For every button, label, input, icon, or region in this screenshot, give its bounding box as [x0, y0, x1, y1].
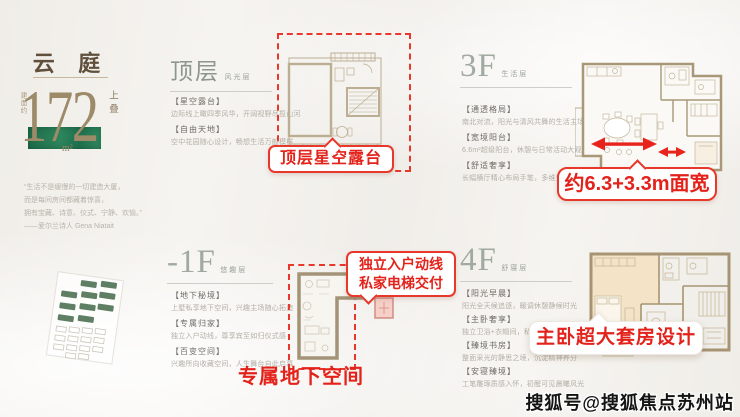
feature-desc: 阳光全天候追逐，暖调休憩静候时光	[462, 301, 584, 311]
section-subtitle: 舒寝层	[501, 265, 528, 272]
feature-label: 【通透格局】	[462, 104, 584, 115]
quote-line: “生活不是缓慢的一切建造大厦，	[24, 181, 142, 194]
feature-desc: 上墅私享地下空间，兴趣主场随心拓造	[171, 303, 293, 313]
section-top-floor-header: 顶层 风光层	[170, 52, 272, 92]
rooftop-floor-plan-illustration	[285, 40, 400, 160]
area-prefix: 建面约	[17, 92, 27, 115]
feature-label: 【自由天地】	[171, 124, 293, 135]
bay-width-callout: 约6.3+3.3m面宽	[557, 167, 717, 201]
project-title: 云 庭	[28, 46, 114, 78]
section-4f-header: 4F 舒寝层	[460, 244, 572, 282]
section-minus1f-items: 【地下秘境】 上墅私享地下空间，兴趣主场随心拓造 【专属归家】 独立入户动线，尊…	[171, 290, 293, 369]
master-suite-callout: 主卧超大套房设计	[529, 321, 703, 355]
callout-text: 主卧超大套房设计	[536, 327, 696, 348]
feature-label: 【星空露台】	[171, 96, 293, 107]
feature-label: 【宽境阳台】	[462, 132, 584, 143]
site-plan-thumbnail	[44, 267, 128, 368]
feature-desc: 边际线上瞰四季风华，开阔视野尽揽山河	[171, 109, 293, 119]
section-divider	[460, 281, 572, 282]
section-top-floor-items: 【星空露台】 边际线上瞰四季风华，开阔视野尽揽山河 【自由天地】 空中花园随心设…	[171, 96, 293, 147]
area-number: 172	[20, 80, 98, 154]
section-subtitle: 悠趣层	[220, 267, 247, 274]
feature-desc: 南北对流，阳光与清风共舞的生活主场	[462, 117, 584, 127]
rooftop-terrace-callout: 顶层星空露台	[268, 145, 394, 173]
section-divider	[170, 91, 272, 92]
quote-line: 而是每间房间都藏着惊喜，	[24, 194, 142, 207]
section-title: 4F	[460, 242, 497, 278]
sohu-watermark: 搜狐号@搜狐焦点苏州站	[525, 389, 734, 415]
site-plan-illustration	[44, 267, 128, 368]
section-3f-header: 3F 生活层	[460, 50, 572, 88]
feature-label: 【百变空间】	[171, 346, 293, 357]
section-title: 顶层	[170, 59, 220, 84]
basement-space-callout: 专属地下空间	[238, 360, 364, 389]
quote-line: ——爱尔兰诗人 Gena Niatait	[24, 220, 142, 233]
hero-quote: “生活不是缓慢的一切建造大厦， 而是每间房间都藏着惊喜， 拥有宝藏、诗意、仪式、…	[24, 181, 142, 233]
area-suffix: 上叠	[105, 90, 119, 117]
feature-desc: 工笔雕琢质感入怀，初醒可见晨曦风光	[462, 379, 584, 389]
quote-line: 拥有宝藏、诗意、仪式、宁静、欢愉。”	[24, 207, 142, 220]
private-entry-callout: 独立入户动线 私家电梯交付	[346, 251, 456, 297]
feature-label: 【地下秘境】	[171, 290, 293, 301]
section-divider	[460, 87, 572, 88]
area-unit: m²	[62, 143, 73, 154]
section-subtitle: 风光层	[224, 74, 251, 81]
section-subtitle: 生活层	[501, 71, 528, 78]
callout-text: 独立入户动线	[348, 255, 454, 274]
section-minus1f-header: -1F 悠趣层	[167, 246, 273, 284]
section-title: 3F	[460, 48, 497, 84]
section-divider	[167, 283, 273, 284]
feature-desc: 独立入户动线，尊享宾至如归仪式感	[171, 331, 293, 341]
feature-label: 【阳光早晨】	[462, 288, 584, 299]
section-title: -1F	[167, 244, 216, 280]
feature-label: 【专属归家】	[171, 318, 293, 329]
feature-label: 【安寝臻境】	[462, 366, 584, 377]
feature-desc: 6.6m²超级阳台，休憩与日常活动大观	[462, 145, 584, 155]
promo-poster: 云 庭 172 m² 建面约 上叠 “生活不是缓慢的一切建造大厦， 而是每间房间…	[0, 0, 740, 417]
